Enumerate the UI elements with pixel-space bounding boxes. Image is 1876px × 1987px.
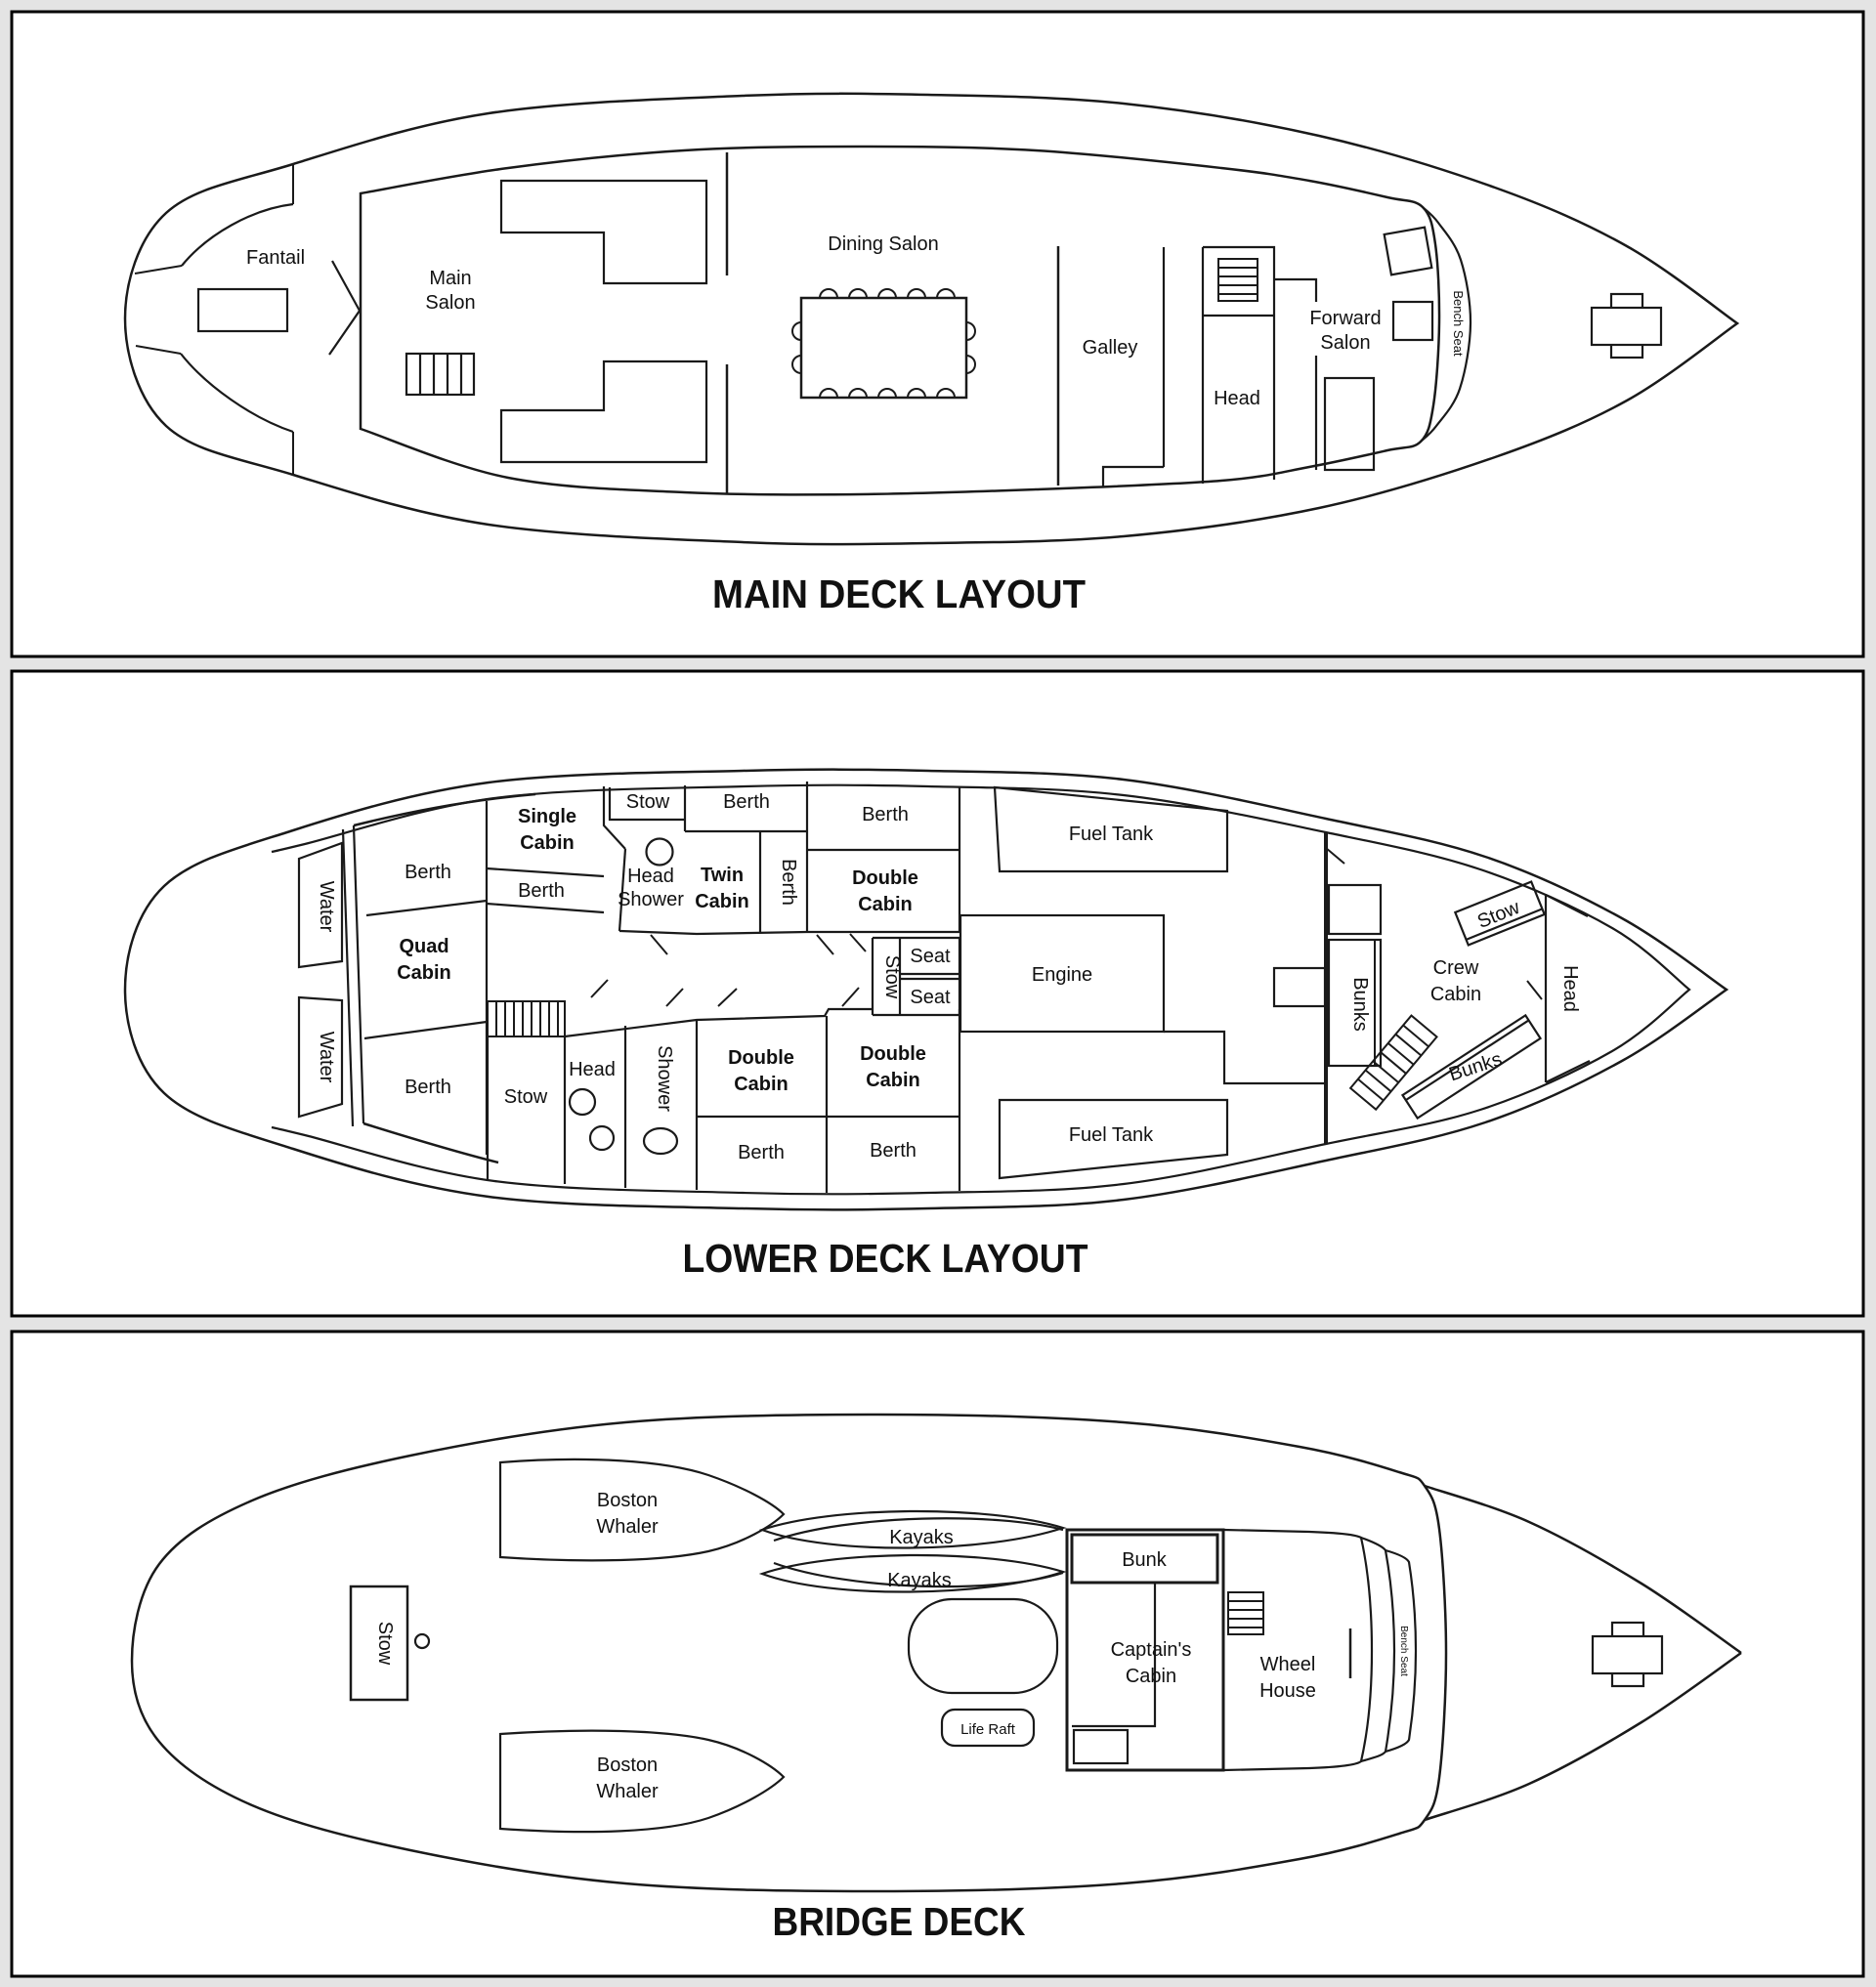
svg-text:Cabin: Cabin: [858, 894, 913, 915]
svg-text:Stow: Stow: [881, 955, 903, 999]
svg-text:Bunk: Bunk: [1122, 1549, 1168, 1571]
svg-text:Cabin: Cabin: [695, 891, 749, 912]
svg-text:Cabin: Cabin: [397, 962, 451, 984]
svg-text:Berth: Berth: [405, 862, 451, 883]
svg-text:Single: Single: [518, 806, 576, 827]
svg-text:Twin: Twin: [701, 865, 744, 886]
svg-text:Stow: Stow: [504, 1086, 548, 1108]
svg-text:Shower: Shower: [618, 889, 684, 910]
svg-text:Main: Main: [429, 268, 471, 289]
svg-text:Kayaks: Kayaks: [889, 1527, 954, 1548]
svg-text:Fuel Tank: Fuel Tank: [1069, 1124, 1154, 1146]
svg-text:Cabin: Cabin: [734, 1074, 789, 1095]
svg-text:Berth: Berth: [723, 791, 770, 813]
svg-text:Head: Head: [1214, 388, 1260, 409]
svg-text:Salon: Salon: [425, 292, 475, 314]
svg-text:Double: Double: [728, 1047, 794, 1069]
svg-text:Berth: Berth: [778, 859, 799, 906]
svg-text:Bunks: Bunks: [1349, 977, 1371, 1032]
svg-text:Cabin: Cabin: [1126, 1666, 1176, 1687]
svg-text:Salon: Salon: [1320, 332, 1370, 354]
svg-text:Double: Double: [860, 1043, 926, 1065]
svg-text:Berth: Berth: [870, 1140, 917, 1162]
svg-text:Bench Seat: Bench Seat: [1451, 290, 1466, 357]
svg-text:BRIDGE DECK: BRIDGE DECK: [773, 1899, 1026, 1944]
svg-text:Water: Water: [316, 1032, 337, 1083]
svg-text:Galley: Galley: [1083, 337, 1138, 359]
svg-text:Dining Salon: Dining Salon: [828, 233, 938, 255]
svg-text:Berth: Berth: [738, 1142, 785, 1163]
svg-text:Boston: Boston: [597, 1754, 658, 1776]
svg-text:Seat: Seat: [910, 987, 951, 1008]
svg-text:Boston: Boston: [597, 1490, 658, 1511]
svg-text:Cabin: Cabin: [1430, 984, 1481, 1005]
svg-text:Cabin: Cabin: [520, 832, 575, 854]
svg-text:Life Raft: Life Raft: [960, 1721, 1016, 1738]
svg-text:Double: Double: [852, 867, 918, 889]
svg-text:Whaler: Whaler: [596, 1516, 659, 1538]
svg-text:Head: Head: [627, 866, 674, 887]
svg-text:Engine: Engine: [1032, 964, 1092, 986]
svg-text:Crew: Crew: [1433, 957, 1479, 979]
svg-text:Berth: Berth: [862, 804, 909, 825]
svg-text:MAIN DECK LAYOUT: MAIN DECK LAYOUT: [712, 571, 1086, 616]
svg-text:Stow: Stow: [626, 791, 670, 813]
svg-text:Water: Water: [316, 881, 337, 933]
svg-text:Bench Seat: Bench Seat: [1398, 1626, 1409, 1676]
svg-text:Seat: Seat: [910, 946, 951, 967]
svg-text:Cabin: Cabin: [866, 1070, 920, 1091]
svg-text:Shower: Shower: [654, 1045, 675, 1112]
svg-text:Captain's: Captain's: [1111, 1639, 1192, 1661]
svg-text:Stow: Stow: [374, 1622, 396, 1666]
svg-text:Berth: Berth: [518, 880, 565, 902]
svg-text:Fantail: Fantail: [246, 247, 305, 269]
svg-text:House: House: [1259, 1680, 1316, 1702]
svg-text:Berth: Berth: [405, 1077, 451, 1098]
svg-text:Kayaks: Kayaks: [887, 1570, 952, 1591]
svg-text:Wheel: Wheel: [1260, 1654, 1316, 1675]
svg-text:Fuel Tank: Fuel Tank: [1069, 824, 1154, 845]
svg-text:Whaler: Whaler: [596, 1781, 659, 1802]
svg-text:Quad: Quad: [399, 936, 448, 957]
svg-text:Head: Head: [1559, 965, 1581, 1012]
svg-text:Head: Head: [569, 1059, 616, 1080]
svg-text:Forward: Forward: [1309, 308, 1381, 329]
svg-text:LOWER DECK LAYOUT: LOWER DECK LAYOUT: [683, 1236, 1088, 1281]
